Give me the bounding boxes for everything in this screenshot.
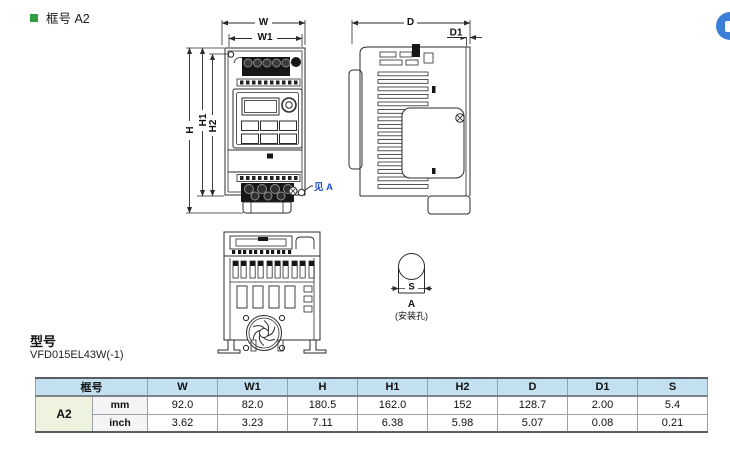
inch-d1: 0.08 bbox=[568, 414, 638, 432]
col-header-h: H bbox=[288, 378, 358, 396]
inch-s: 0.21 bbox=[638, 414, 708, 432]
model-section-label: 型号 bbox=[30, 331, 56, 350]
unit-cell-mm: mm bbox=[93, 396, 148, 414]
col-header-h2: H2 bbox=[428, 378, 498, 396]
side-view-drawing: D D1 bbox=[349, 15, 482, 214]
knob-top bbox=[291, 57, 301, 67]
mounting-hole-top-left bbox=[228, 52, 233, 57]
mm-h2: 152 bbox=[428, 396, 498, 414]
keypad-panel bbox=[233, 89, 302, 148]
table-header-row: 框号 W W1 H H1 H2 D D1 S bbox=[36, 378, 708, 396]
dim-label-d1: D1 bbox=[450, 28, 463, 39]
mm-h1: 162.0 bbox=[358, 396, 428, 414]
din-clip bbox=[412, 44, 420, 57]
mm-w1: 82.0 bbox=[218, 396, 288, 414]
top-terminal-screws bbox=[244, 59, 290, 67]
dimension-table: 框号 W W1 H H1 H2 D D1 S A2 mm 92.0 82.0 1… bbox=[35, 377, 708, 433]
inch-w: 3.62 bbox=[148, 414, 218, 432]
mm-h: 180.5 bbox=[288, 396, 358, 414]
col-header-w: W bbox=[148, 378, 218, 396]
manual-page: 框号 A2 W W1 H H1 bbox=[0, 0, 730, 461]
inch-h1: 6.38 bbox=[358, 414, 428, 432]
mm-s: 5.4 bbox=[638, 396, 708, 414]
dim-label-h2: H2 bbox=[208, 119, 219, 132]
col-header-frame: 框号 bbox=[36, 378, 148, 396]
col-header-s: S bbox=[638, 378, 708, 396]
widget-glyph-icon bbox=[725, 21, 730, 32]
dim-label-s: S bbox=[408, 282, 414, 293]
mm-d1: 2.00 bbox=[568, 396, 638, 414]
front-view-drawing: W W1 H H1 H2 bbox=[183, 15, 333, 213]
inch-w1: 3.23 bbox=[218, 414, 288, 432]
keypad-knob bbox=[282, 98, 296, 112]
cooling-fan bbox=[243, 315, 284, 350]
dim-label-w1: W1 bbox=[258, 32, 273, 43]
col-header-h1: H1 bbox=[358, 378, 428, 396]
detail-a-label: A bbox=[408, 299, 415, 310]
table-row-inch: inch 3.62 3.23 7.11 6.38 5.98 5.07 0.08 … bbox=[36, 414, 708, 432]
inch-d: 5.07 bbox=[498, 414, 568, 432]
col-header-w1: W1 bbox=[218, 378, 288, 396]
col-header-d: D bbox=[498, 378, 568, 396]
col-header-d1: D1 bbox=[568, 378, 638, 396]
inch-h2: 5.98 bbox=[428, 414, 498, 432]
detail-a-note: (安装孔) bbox=[395, 310, 428, 321]
dim-label-h: H bbox=[185, 126, 196, 133]
side-label-area bbox=[402, 108, 464, 178]
frame-value-cell: A2 bbox=[36, 396, 93, 432]
inch-h: 7.11 bbox=[288, 414, 358, 432]
see-a-callout: 见 A bbox=[314, 182, 333, 193]
dimension-drawings: W W1 H H1 H2 bbox=[0, 0, 730, 375]
dim-label-w: W bbox=[259, 17, 269, 28]
dim-label-d: D bbox=[407, 17, 414, 28]
mounting-hole-detail-drawing: S A (安装孔) bbox=[391, 254, 432, 322]
mounting-foot-left bbox=[218, 340, 240, 353]
model-number: VFD015EL43W(-1) bbox=[30, 349, 124, 361]
mounting-foot-right bbox=[304, 340, 326, 353]
mounting-hole-bottom-right bbox=[298, 189, 304, 195]
table-row-mm: A2 mm 92.0 82.0 180.5 162.0 152 128.7 2.… bbox=[36, 396, 708, 414]
mm-d: 128.7 bbox=[498, 396, 568, 414]
unit-cell-inch: inch bbox=[93, 414, 148, 432]
mm-w: 92.0 bbox=[148, 396, 218, 414]
bottom-view-drawing bbox=[218, 232, 326, 353]
